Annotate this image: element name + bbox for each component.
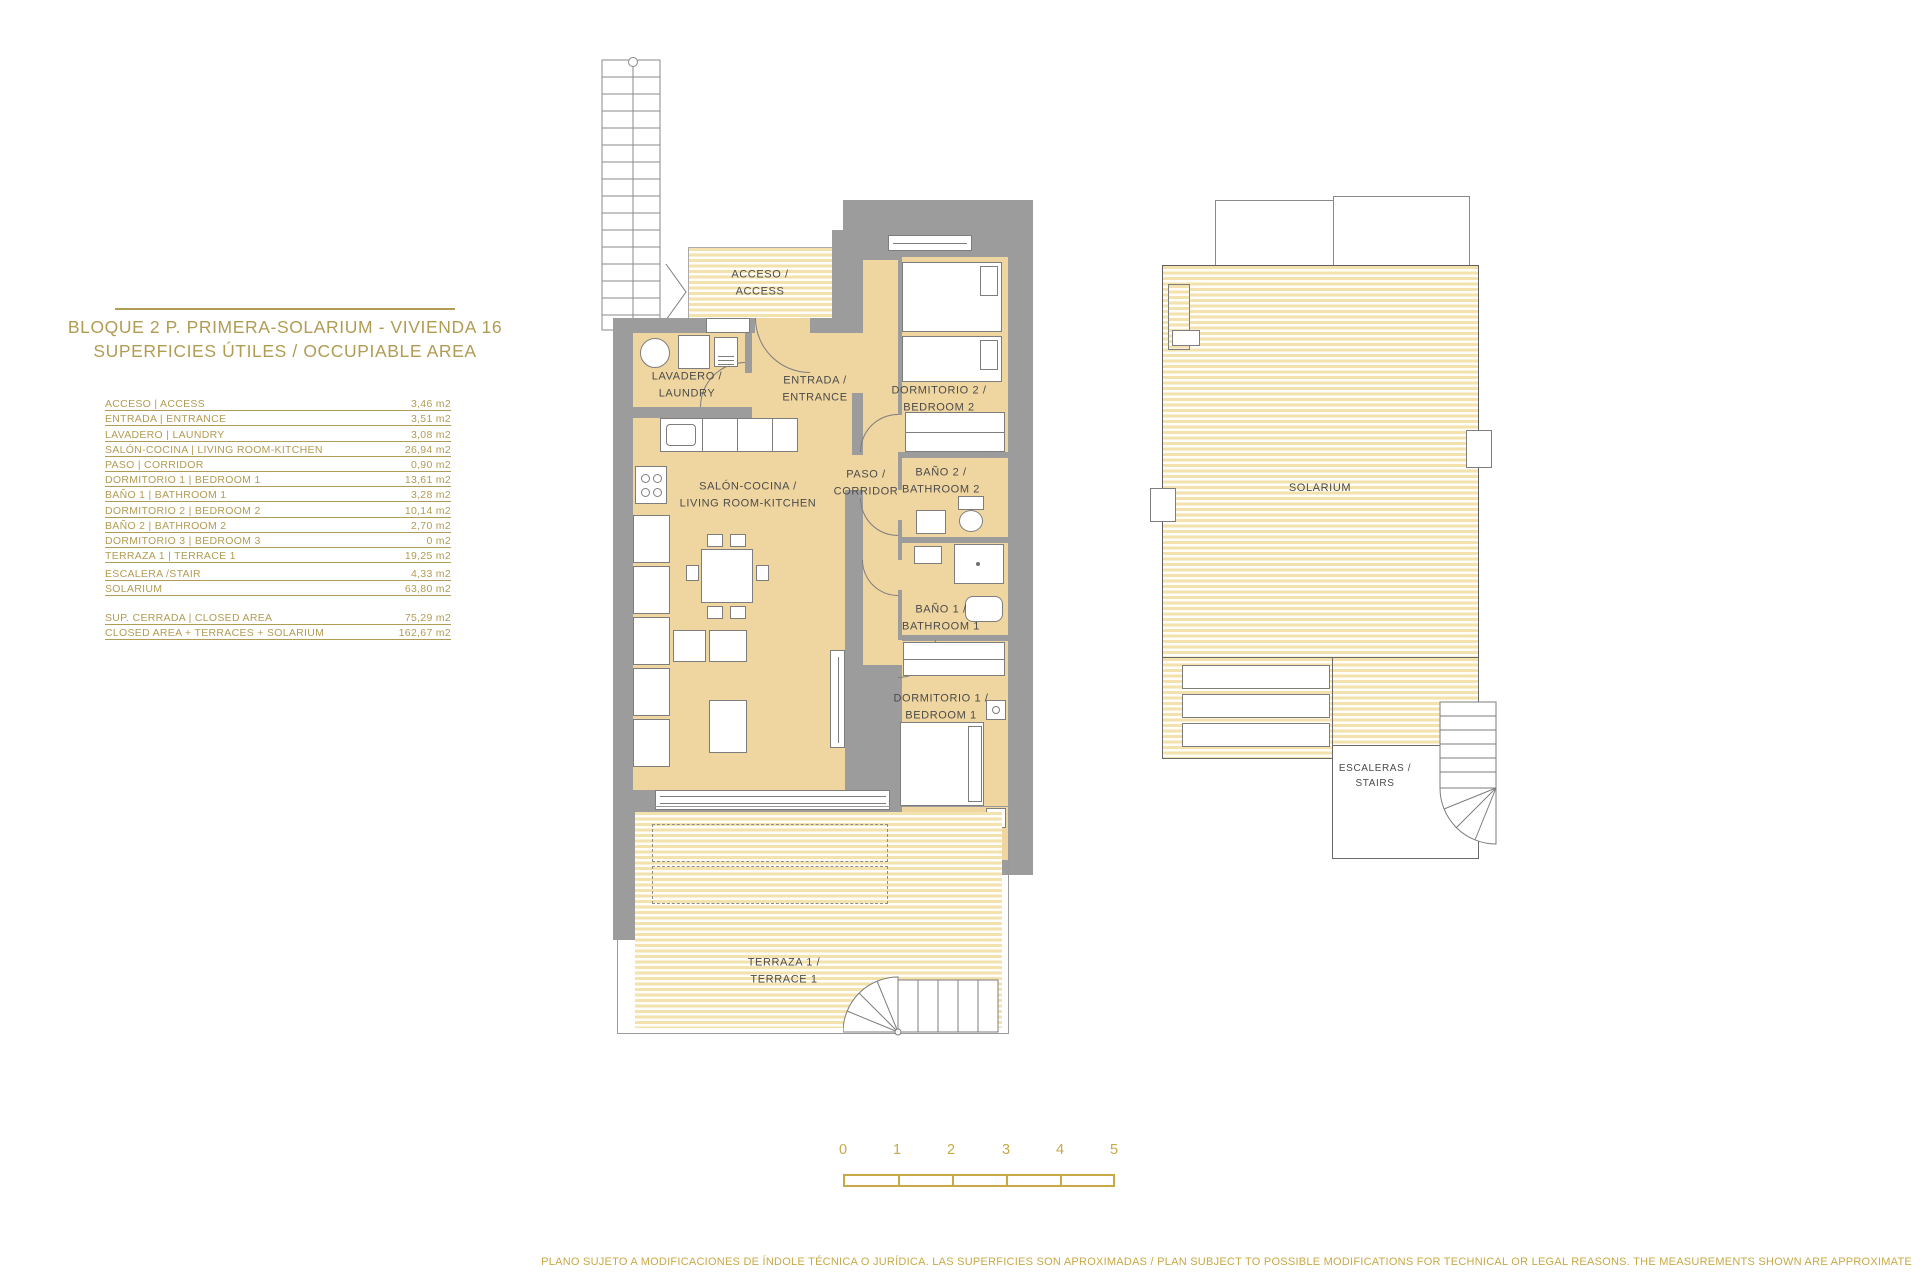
area-label: DORMITORIO 3 | BEDROOM 3 bbox=[105, 535, 261, 547]
area-table: ACCESO | ACCESS3,46 m2 ENTRADA | ENTRANC… bbox=[105, 396, 451, 640]
area-label: ENTRADA | ENTRANCE bbox=[105, 413, 226, 425]
area-value: 3,46 m2 bbox=[411, 398, 451, 410]
pillow bbox=[980, 340, 998, 370]
solarium-area bbox=[1162, 265, 1479, 659]
area-value: 2,70 m2 bbox=[411, 520, 451, 532]
stove bbox=[635, 466, 667, 504]
label-line: DORMITORIO 1 / bbox=[894, 691, 989, 708]
washing-machine bbox=[640, 338, 670, 368]
label-line: BAÑO 2 / bbox=[902, 465, 980, 482]
label-line: BATHROOM 2 bbox=[902, 481, 980, 498]
area-value: 63,80 m2 bbox=[405, 583, 451, 595]
area-value: 3,28 m2 bbox=[411, 489, 451, 501]
sofa-module bbox=[633, 719, 670, 767]
window bbox=[888, 235, 972, 251]
shower-drain bbox=[976, 562, 980, 566]
scale-tick: 1 bbox=[885, 1142, 909, 1158]
planter bbox=[1172, 330, 1200, 346]
dining-chair bbox=[686, 565, 699, 581]
table-row: SALÓN-COCINA | LIVING ROOM-KITCHEN26,94 … bbox=[105, 442, 451, 457]
room-label-bano2: BAÑO 2 / BATHROOM 2 bbox=[902, 465, 980, 498]
area-value: 3,08 m2 bbox=[411, 429, 451, 441]
label-line: CORRIDOR bbox=[834, 483, 899, 500]
pillow bbox=[968, 726, 982, 802]
table-row: SUP. CERRADA | CLOSED AREA75,29 m2 bbox=[105, 609, 451, 624]
label-line: TERRACE 1 bbox=[748, 971, 821, 988]
curved-stairs bbox=[1436, 700, 1500, 860]
sofa-module bbox=[633, 617, 670, 665]
bathroom-sink bbox=[916, 510, 946, 534]
wall-niche bbox=[1466, 430, 1492, 468]
dining-chair bbox=[730, 606, 746, 619]
label-line: STAIRS bbox=[1339, 776, 1411, 791]
room-label-paso: PASO / CORRIDOR bbox=[834, 467, 899, 500]
sofa-module bbox=[633, 515, 670, 563]
stove-burner bbox=[653, 474, 662, 483]
bench bbox=[1182, 665, 1330, 689]
page-title: BLOQUE 2 P. PRIMERA-SOLARIUM - VIVIENDA … bbox=[35, 317, 535, 338]
label-line: BATHROOM 1 bbox=[902, 618, 980, 635]
room-label-entrada: ENTRADA / ENTRANCE bbox=[782, 373, 847, 406]
label-line: LAUNDRY bbox=[652, 385, 722, 402]
door-opening bbox=[898, 415, 902, 452]
area-label: ACCESO | ACCESS bbox=[105, 398, 205, 410]
wall-niche bbox=[1150, 488, 1176, 522]
area-value: 0 m2 bbox=[426, 535, 451, 547]
table-row: ESCALERA /STAIR4,33 m2 bbox=[105, 566, 451, 581]
window-line bbox=[660, 796, 886, 797]
label-line: DORMITORIO 2 / bbox=[892, 383, 987, 400]
dining-chair bbox=[707, 606, 723, 619]
disclaimer-text: PLANO SUJETO A MODIFICACIONES DE ÍNDOLE … bbox=[541, 1256, 1912, 1268]
window-line bbox=[660, 803, 886, 804]
table-row: BAÑO 2 | BATHROOM 22,70 m2 bbox=[105, 518, 451, 533]
area-label: SOLARIUM bbox=[105, 583, 162, 595]
direction-arrow-icon bbox=[666, 264, 686, 320]
area-label: BAÑO 2 | BATHROOM 2 bbox=[105, 520, 226, 532]
bench bbox=[1182, 723, 1330, 747]
kitchen-sink bbox=[666, 424, 696, 446]
stove-burner bbox=[641, 488, 650, 497]
wall bbox=[613, 812, 635, 940]
room-label-acceso: ACCESO / ACCESS bbox=[731, 267, 788, 300]
door-opening bbox=[745, 373, 752, 407]
sofa-module bbox=[633, 668, 670, 716]
label-line: BEDROOM 2 bbox=[892, 399, 987, 416]
pergola-dashed-outline bbox=[652, 866, 888, 904]
label-line: ACCESO / bbox=[731, 267, 788, 284]
toilet-bowl bbox=[959, 510, 983, 532]
floor-plan-page: BLOQUE 2 P. PRIMERA-SOLARIUM - VIVIENDA … bbox=[0, 0, 1920, 1280]
wall bbox=[832, 230, 843, 318]
label-line: ENTRANCE bbox=[782, 389, 847, 406]
page-subtitle: SUPERFICIES ÚTILES / OCCUPIABLE AREA bbox=[35, 341, 535, 362]
pillow bbox=[980, 266, 998, 296]
table-row: BAÑO 1 | BATHROOM 13,28 m2 bbox=[105, 487, 451, 502]
area-value: 10,14 m2 bbox=[405, 505, 451, 517]
room-label-lavadero: LAVADERO / LAUNDRY bbox=[652, 369, 722, 402]
area-label: PASO | CORRIDOR bbox=[105, 459, 204, 471]
room-label-bano1: BAÑO 1 / BATHROOM 1 bbox=[902, 602, 980, 635]
room-label-solarium: SOLARIUM bbox=[1289, 480, 1351, 497]
window bbox=[830, 650, 845, 748]
area-value: 4,33 m2 bbox=[411, 568, 451, 580]
lamp bbox=[992, 706, 1000, 714]
room-label-dormitorio1: DORMITORIO 1 / BEDROOM 1 bbox=[894, 691, 989, 724]
sofa-module bbox=[709, 630, 747, 662]
label-line: BEDROOM 1 bbox=[894, 707, 989, 724]
table-row: CLOSED AREA + TERRACES + SOLARIUM162,67 … bbox=[105, 625, 451, 640]
area-value: 26,94 m2 bbox=[405, 444, 451, 456]
room-label-terraza: TERRAZA 1 / TERRACE 1 bbox=[748, 955, 821, 988]
dining-table bbox=[701, 549, 753, 603]
door-opening bbox=[898, 560, 902, 590]
boiler bbox=[714, 337, 738, 367]
area-label: SALÓN-COCINA | LIVING ROOM-KITCHEN bbox=[105, 444, 323, 456]
table-row: ACCESO | ACCESS3,46 m2 bbox=[105, 396, 451, 411]
label-line: SALÓN-COCINA / bbox=[680, 479, 817, 496]
toilet-tank bbox=[958, 496, 984, 510]
label-line: ENTRADA / bbox=[782, 373, 847, 390]
pergola-dashed-outline bbox=[652, 824, 888, 862]
table-row: PASO | CORRIDOR0,90 m2 bbox=[105, 457, 451, 472]
coffee-table bbox=[709, 700, 747, 753]
wardrobe bbox=[905, 412, 1005, 452]
area-label: TERRAZA 1 | TERRACE 1 bbox=[105, 550, 236, 562]
area-label: DORMITORIO 1 | BEDROOM 1 bbox=[105, 474, 261, 486]
table-row: ENTRADA | ENTRANCE3,51 m2 bbox=[105, 411, 451, 426]
stove-burner bbox=[641, 474, 650, 483]
sofa-module bbox=[633, 566, 670, 614]
label-line: PASO / bbox=[834, 467, 899, 484]
curved-stairs bbox=[843, 958, 1003, 1038]
area-label: BAÑO 1 | BATHROOM 1 bbox=[105, 489, 226, 501]
area-value: 162,67 m2 bbox=[399, 627, 451, 639]
room-corridor bbox=[863, 260, 898, 665]
scale-bar bbox=[843, 1174, 1115, 1187]
label-line: LIVING ROOM-KITCHEN bbox=[680, 495, 817, 512]
area-label: SUP. CERRADA | CLOSED AREA bbox=[105, 612, 272, 624]
dining-chair bbox=[730, 534, 746, 547]
label-line: SOLARIUM bbox=[1289, 480, 1351, 497]
scale-tick: 0 bbox=[831, 1142, 855, 1158]
label-line: TERRAZA 1 / bbox=[748, 955, 821, 972]
table-row: DORMITORIO 1 | BEDROOM 113,61 m2 bbox=[105, 472, 451, 487]
title-rule bbox=[115, 308, 455, 310]
table-row: LAVADERO | LAUNDRY3,08 m2 bbox=[105, 426, 451, 441]
entrance-door-leaf bbox=[706, 318, 750, 333]
room-label-salon: SALÓN-COCINA / LIVING ROOM-KITCHEN bbox=[680, 479, 817, 512]
sofa-module bbox=[673, 630, 706, 662]
table-gap bbox=[105, 596, 451, 609]
stove-burner bbox=[653, 488, 662, 497]
area-value: 19,25 m2 bbox=[405, 550, 451, 562]
label-line: BAÑO 1 / bbox=[902, 602, 980, 619]
roof-element bbox=[1215, 200, 1335, 268]
area-value: 13,61 m2 bbox=[405, 474, 451, 486]
table-row: DORMITORIO 2 | BEDROOM 210,14 m2 bbox=[105, 502, 451, 517]
exterior-staircase bbox=[596, 52, 692, 344]
room-label-dormitorio2: DORMITORIO 2 / BEDROOM 2 bbox=[892, 383, 987, 416]
door-opening bbox=[852, 333, 863, 393]
window-line bbox=[893, 243, 967, 244]
scale-tick: 5 bbox=[1102, 1142, 1126, 1158]
scale-tick: 3 bbox=[994, 1142, 1018, 1158]
bench bbox=[1182, 694, 1330, 718]
wardrobe bbox=[903, 642, 1005, 676]
area-value: 0,90 m2 bbox=[411, 459, 451, 471]
dining-chair bbox=[707, 534, 723, 547]
roof-element bbox=[1333, 196, 1470, 268]
area-value: 3,51 m2 bbox=[411, 413, 451, 425]
dining-chair bbox=[756, 565, 769, 581]
bathroom-sink bbox=[914, 546, 942, 564]
label-line: LAVADERO / bbox=[652, 369, 722, 386]
area-label: DORMITORIO 2 | BEDROOM 2 bbox=[105, 505, 261, 517]
window-line bbox=[838, 657, 839, 743]
scale-tick: 2 bbox=[939, 1142, 963, 1158]
area-label: CLOSED AREA + TERRACES + SOLARIUM bbox=[105, 627, 324, 639]
area-value: 75,29 m2 bbox=[405, 612, 451, 624]
table-row: DORMITORIO 3 | BEDROOM 30 m2 bbox=[105, 533, 451, 548]
area-label: LAVADERO | LAUNDRY bbox=[105, 429, 225, 441]
room-label-escaleras: ESCALERAS / STAIRS bbox=[1339, 761, 1411, 791]
label-line: ESCALERAS / bbox=[1339, 761, 1411, 776]
area-label: ESCALERA /STAIR bbox=[105, 568, 201, 580]
table-row: TERRAZA 1 | TERRACE 119,25 m2 bbox=[105, 548, 451, 563]
label-line: ACCESS bbox=[731, 283, 788, 300]
laundry-counter bbox=[678, 335, 710, 369]
table-row: SOLARIUM63,80 m2 bbox=[105, 581, 451, 596]
scale-tick: 4 bbox=[1048, 1142, 1072, 1158]
